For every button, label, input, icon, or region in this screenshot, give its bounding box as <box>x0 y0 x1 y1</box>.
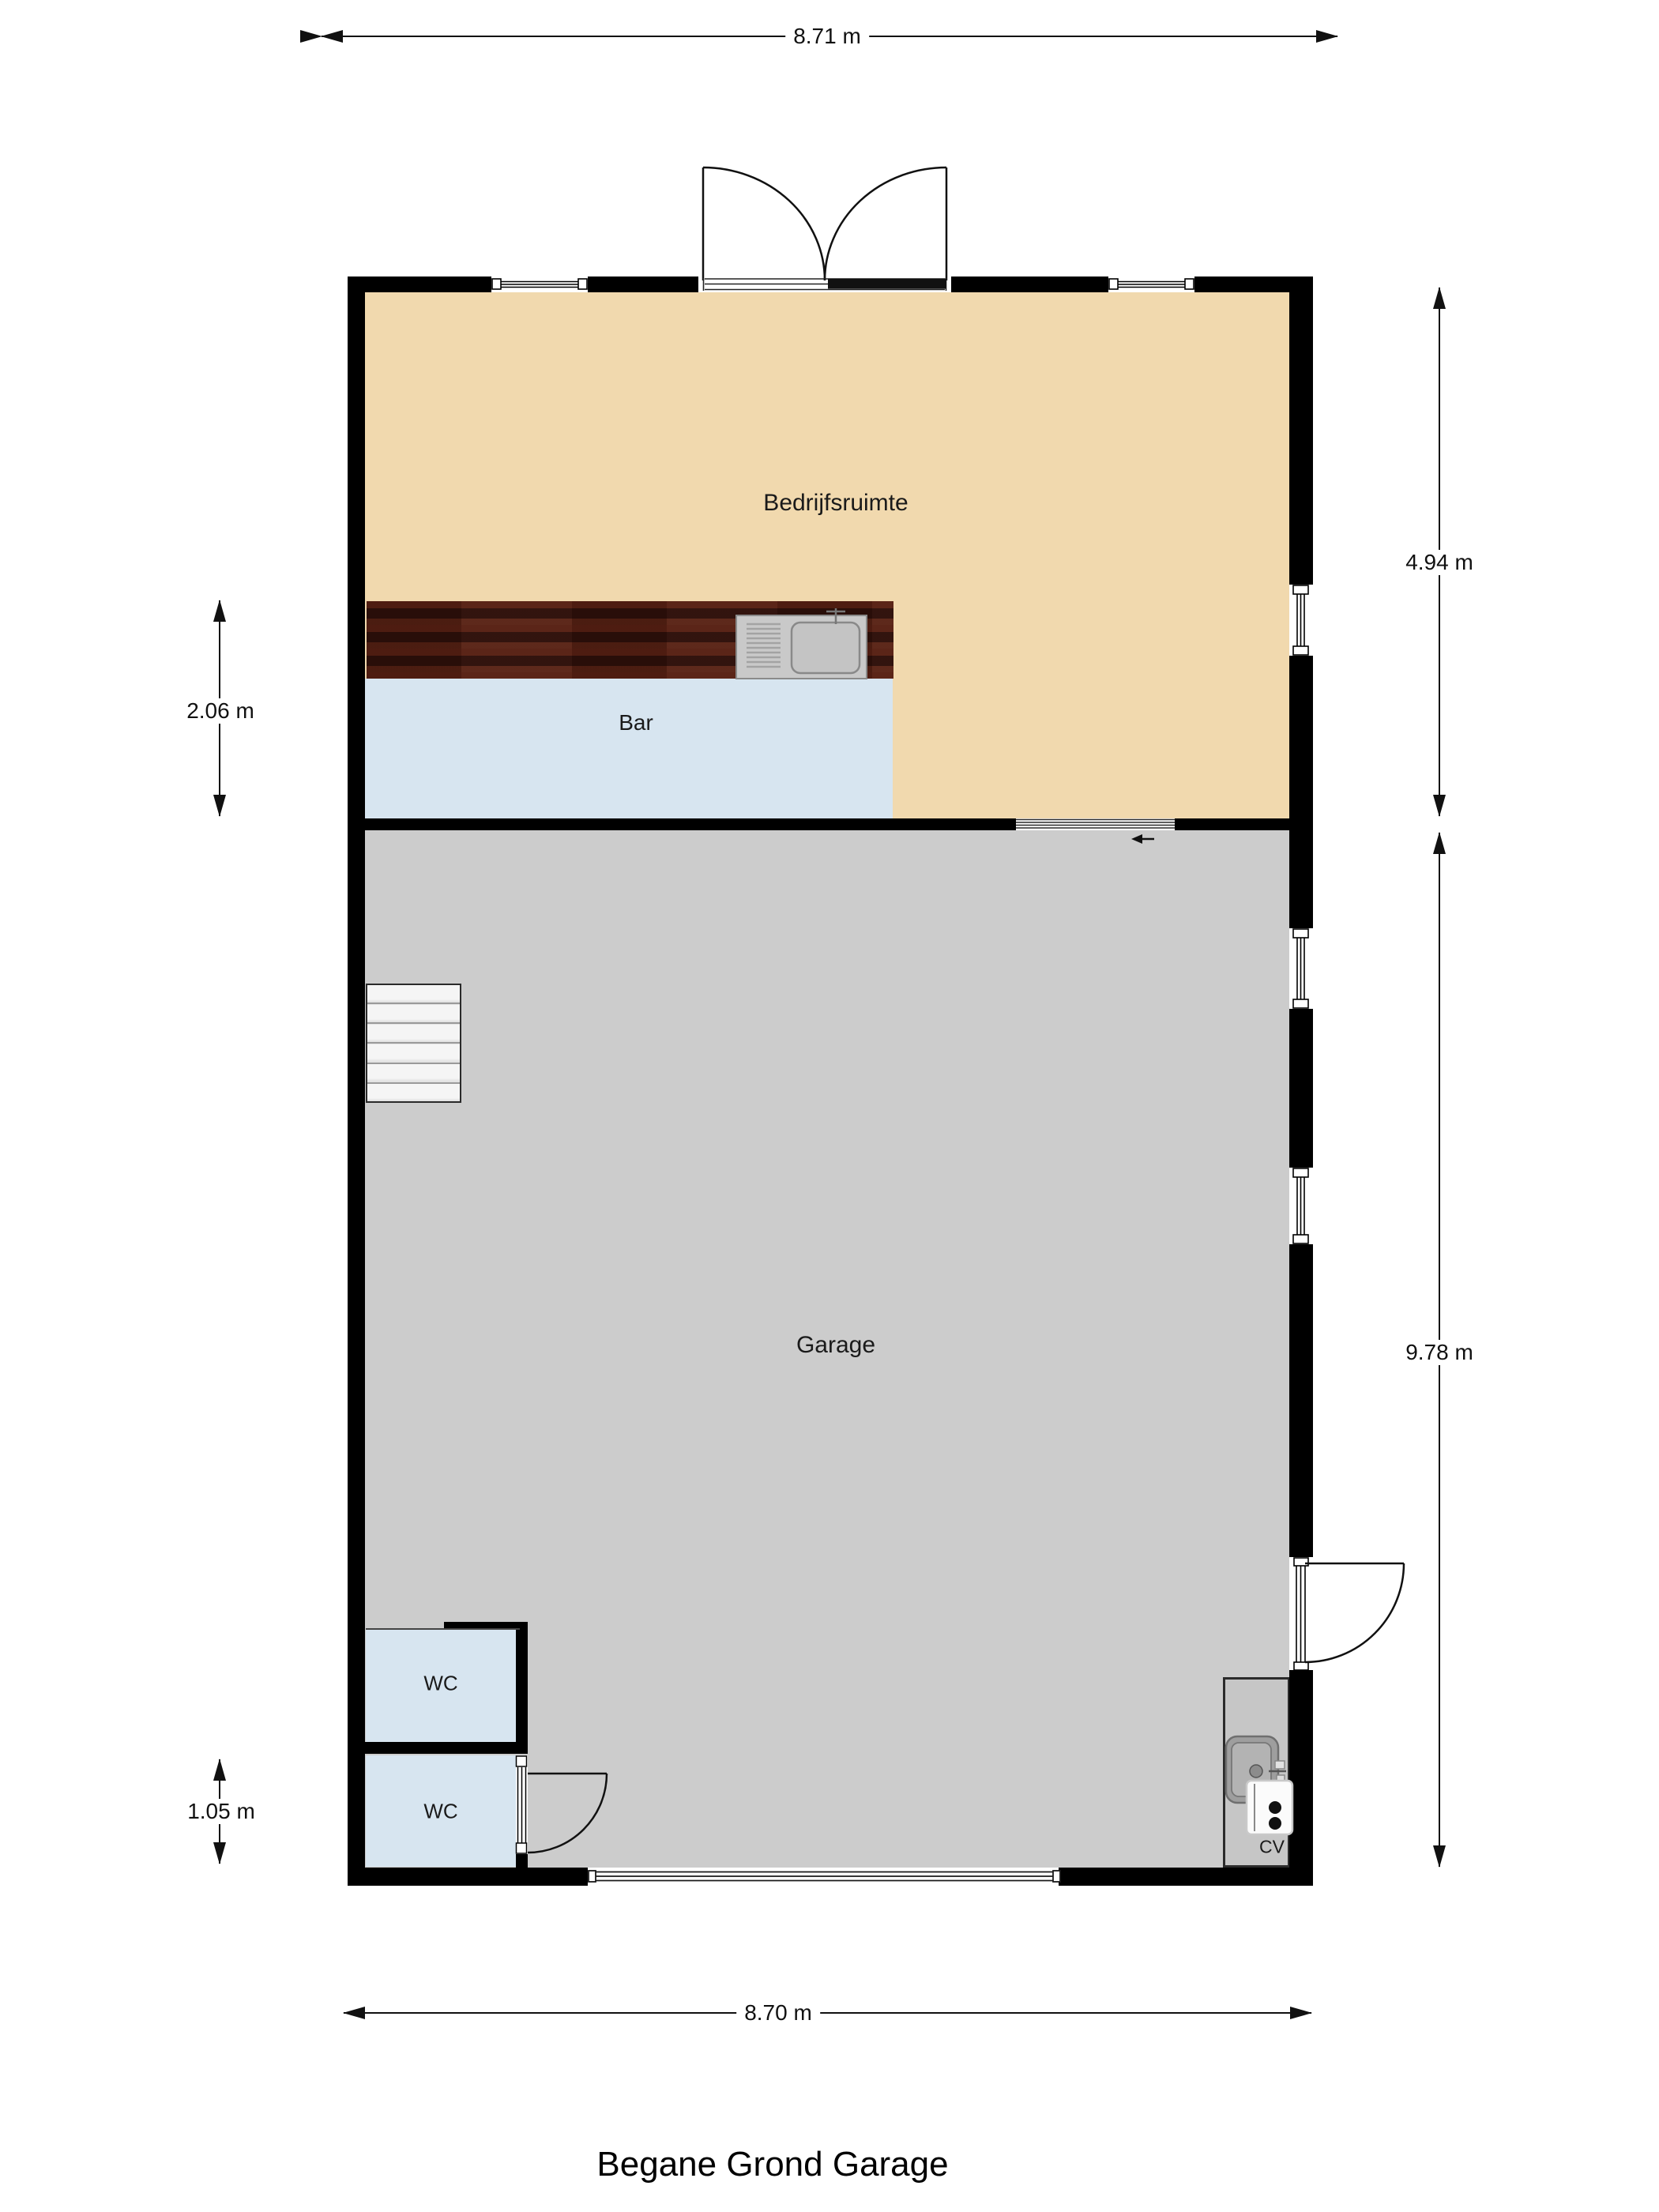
right-door-swing <box>1305 1563 1404 1662</box>
wall-wc-upper-top <box>444 1622 528 1629</box>
dim-label-right-lower: 9.78 m <box>1398 1340 1481 1365</box>
dim-label-top: 8.71 m <box>785 24 869 49</box>
page-title: Begane Grond Garage <box>596 2145 948 2184</box>
wall-left <box>348 276 365 1886</box>
opening-window-top-left <box>491 276 588 292</box>
label-cv: CV <box>1259 1837 1285 1858</box>
label-bedrijfsruimte: Bedrijfsruimte <box>763 490 908 517</box>
double-door-icon <box>703 167 946 280</box>
stairs <box>366 984 461 1103</box>
dim-label-bottom: 8.70 m <box>736 2000 820 2026</box>
opening-garage-door-bottom <box>588 1868 1059 1886</box>
opening-window-right-bedrijfsruimte <box>1289 585 1313 656</box>
label-bar: Bar <box>619 710 653 735</box>
opening-window-top-right <box>1108 276 1194 292</box>
wall-wc-upper-right <box>516 1622 528 1742</box>
bar-counter <box>367 601 893 679</box>
label-garage: Garage <box>796 1332 875 1359</box>
opening-entrance-doors <box>698 276 951 292</box>
wall-wc-lower-bottom <box>516 1854 528 1868</box>
room-bar <box>365 679 893 818</box>
dim-label-left-wc: 1.05 m <box>179 1799 263 1824</box>
opening-sliding-door-divider <box>1016 818 1175 830</box>
opening-wc-lower-door <box>516 1755 528 1854</box>
dim-label-left-bar: 2.06 m <box>179 698 262 724</box>
floorplan-page: Bedrijfsruimte Bar Garage WC WC CV 8.71 … <box>0 0 1659 2212</box>
wall-wc-middle <box>365 1742 528 1754</box>
opening-window-right-garage-2 <box>1289 1168 1313 1244</box>
opening-window-right-garage-1 <box>1289 928 1313 1009</box>
label-wc-lower: WC <box>423 1800 457 1824</box>
dim-label-right-upper: 4.94 m <box>1398 550 1481 575</box>
label-wc-upper: WC <box>423 1672 457 1696</box>
opening-door-right-garage <box>1289 1557 1313 1670</box>
